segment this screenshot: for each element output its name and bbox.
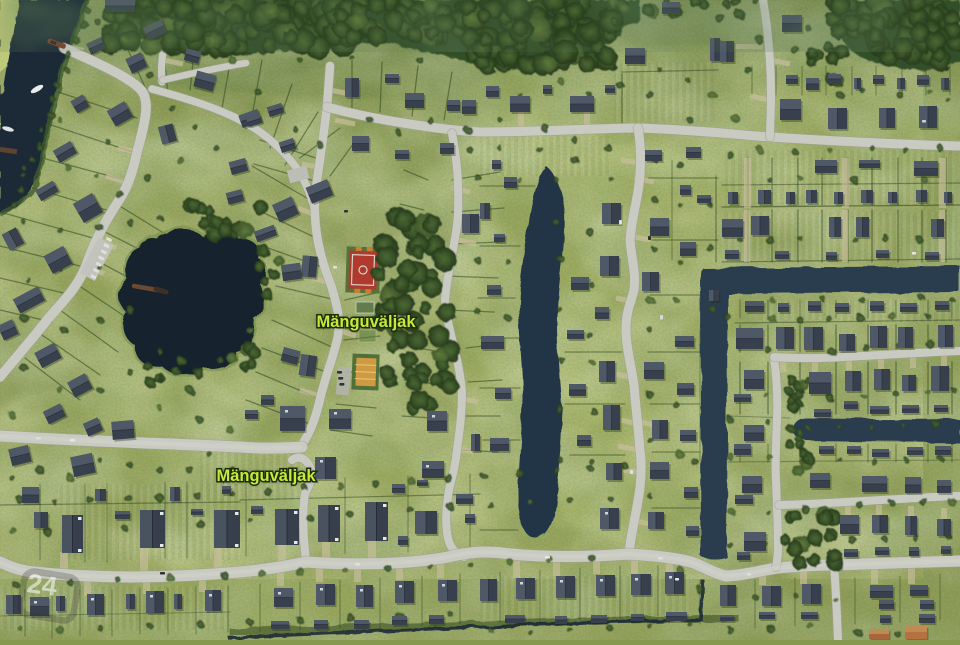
svg-text:Mänguväljak: Mänguväljak (316, 313, 416, 331)
svg-text:Mänguväljak: Mänguväljak (216, 467, 316, 485)
svg-text:24: 24 (25, 568, 59, 602)
